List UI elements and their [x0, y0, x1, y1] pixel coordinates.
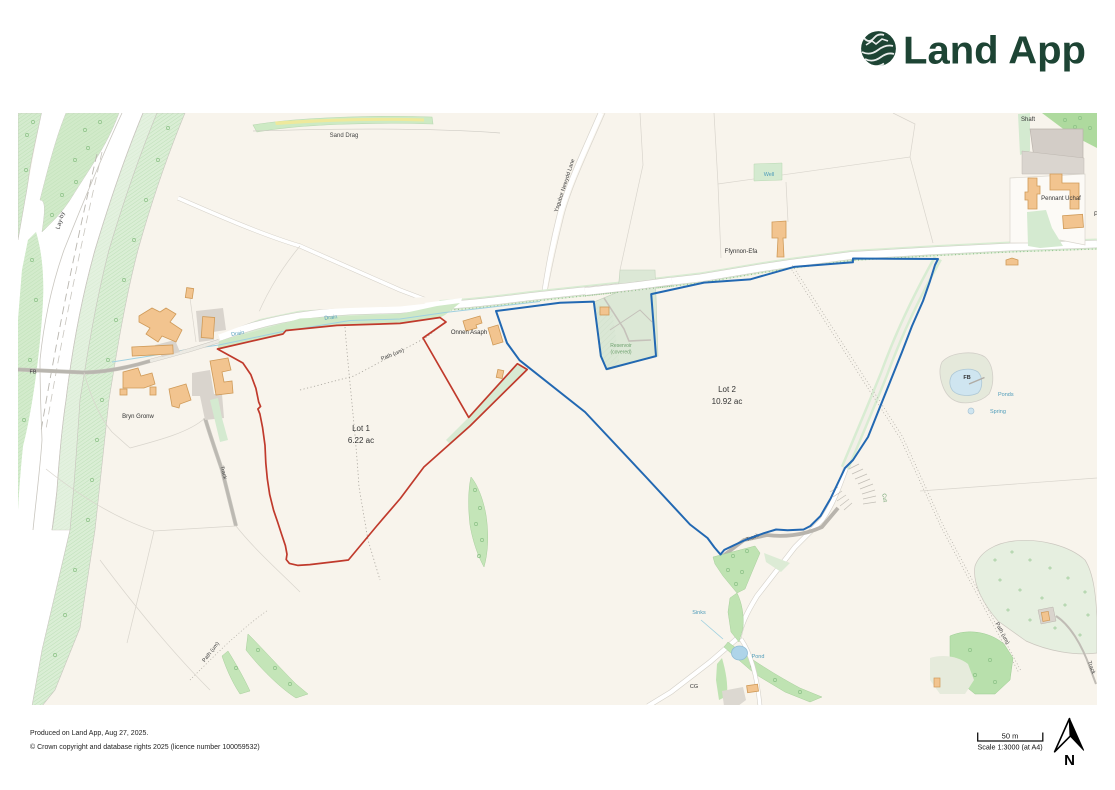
svg-text:CG: CG — [690, 684, 698, 690]
svg-text:Spring: Spring — [990, 409, 1006, 415]
svg-text:Pond: Pond — [752, 654, 765, 660]
svg-text:Pennant Uchaf: Pennant Uchaf — [1041, 196, 1081, 202]
svg-text:Sand Drag: Sand Drag — [330, 133, 359, 139]
svg-text:Land App: Land App — [903, 30, 1086, 73]
svg-text:Ponds: Ponds — [998, 392, 1014, 398]
svg-text:Scale 1:3000 (at A4): Scale 1:3000 (at A4) — [978, 743, 1043, 752]
svg-text:Ffynnon-Efa: Ffynnon-Efa — [725, 249, 758, 255]
svg-text:Lot 2: Lot 2 — [718, 385, 736, 394]
svg-text:FB: FB — [29, 370, 36, 376]
svg-text:10.92 ac: 10.92 ac — [712, 397, 743, 406]
svg-text:Pa: Pa — [1094, 212, 1097, 218]
svg-text:Well: Well — [764, 172, 775, 178]
svg-text:Reservoir: Reservoir — [610, 343, 632, 349]
svg-text:Shaft: Shaft — [1021, 117, 1035, 123]
svg-text:Onnen Asaph: Onnen Asaph — [451, 330, 487, 336]
svg-text:Lot 1: Lot 1 — [352, 424, 370, 433]
svg-text:FB: FB — [963, 375, 970, 381]
svg-text:Bryn Gronw: Bryn Gronw — [122, 414, 154, 420]
svg-text:(covered): (covered) — [610, 350, 631, 356]
svg-text:6.22 ac: 6.22 ac — [348, 436, 374, 445]
svg-text:N: N — [1064, 752, 1075, 769]
svg-text:50 m: 50 m — [1002, 732, 1019, 741]
svg-text:Sinks: Sinks — [692, 610, 706, 616]
